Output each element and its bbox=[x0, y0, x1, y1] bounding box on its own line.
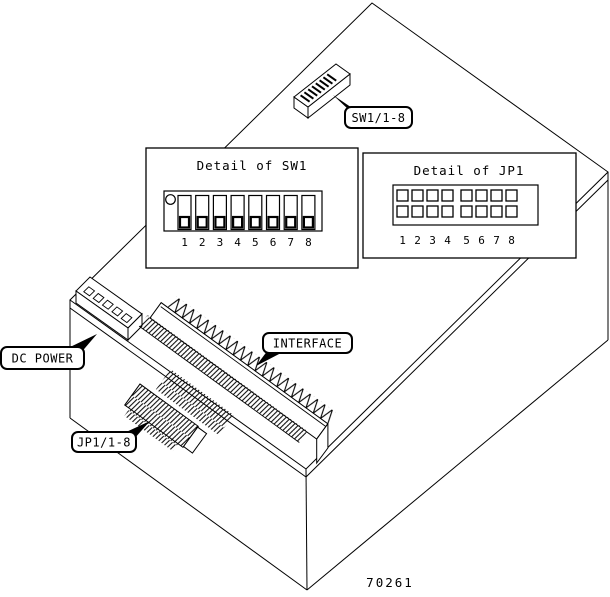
svg-text:4: 4 bbox=[444, 234, 451, 247]
jp1-detail-panel: Detail of JP1 1 2 3 4 5 6 7 8 bbox=[363, 153, 576, 258]
jp1-detail-title: Detail of JP1 bbox=[414, 163, 525, 178]
sw1-pin1-marker bbox=[166, 195, 176, 205]
enclosure-edge-front bbox=[306, 469, 307, 590]
svg-text:8: 8 bbox=[508, 234, 515, 247]
svg-text:5: 5 bbox=[463, 234, 470, 247]
svg-text:4: 4 bbox=[234, 236, 241, 249]
svg-text:5: 5 bbox=[252, 236, 259, 249]
figure-number: 70261 bbox=[366, 575, 414, 590]
svg-text:7: 7 bbox=[287, 236, 294, 249]
callout-interface-label: INTERFACE bbox=[273, 337, 343, 351]
svg-text:8: 8 bbox=[305, 236, 312, 249]
callout-sw1-label: SW1/1-8 bbox=[351, 111, 405, 125]
svg-text:1: 1 bbox=[181, 236, 188, 249]
svg-text:6: 6 bbox=[270, 236, 277, 249]
sw1-detail-panel: Detail of SW1 1 2 3 4 5 bbox=[146, 148, 358, 268]
circuit-board-diagram: Detail of SW1 1 2 3 4 5 bbox=[0, 0, 610, 597]
callout-dc-power: DC POWER bbox=[1, 334, 97, 369]
svg-text:7: 7 bbox=[493, 234, 500, 247]
svg-text:2: 2 bbox=[414, 234, 421, 247]
callout-jp1-label: JP1/1-8 bbox=[77, 436, 131, 450]
svg-text:1: 1 bbox=[399, 234, 406, 247]
technical-diagram-page: Detail of SW1 1 2 3 4 5 bbox=[0, 0, 610, 597]
svg-text:2: 2 bbox=[199, 236, 206, 249]
svg-text:3: 3 bbox=[429, 234, 436, 247]
svg-text:6: 6 bbox=[478, 234, 485, 247]
sw1-detail-title: Detail of SW1 bbox=[197, 158, 308, 173]
callout-dc-power-label: DC POWER bbox=[12, 352, 74, 366]
svg-text:3: 3 bbox=[217, 236, 224, 249]
